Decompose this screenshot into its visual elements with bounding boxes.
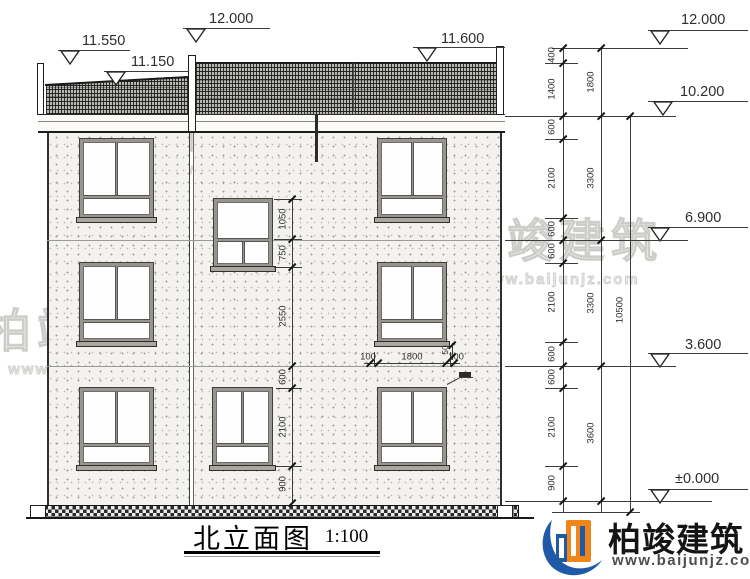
elevation-label: 12.000 bbox=[209, 11, 253, 27]
dim-label: 100 bbox=[360, 352, 376, 363]
window-middle-ground bbox=[213, 388, 272, 466]
elevation-triangle-icon bbox=[186, 28, 206, 43]
elevation-drawing: 柏竣建筑 www.baijunjz.com 柏竣建筑 www.baijunjz.… bbox=[0, 0, 750, 579]
dim-label: 400 bbox=[547, 47, 558, 63]
dim-label: 3300 bbox=[586, 167, 597, 188]
elevation-label: 3.600 bbox=[685, 337, 721, 353]
dim-label: 750 bbox=[278, 245, 289, 261]
extension-line bbox=[274, 267, 302, 268]
dim-label: 1050 bbox=[278, 208, 289, 229]
window-sill bbox=[210, 266, 276, 272]
elevation-label: ±0.000 bbox=[675, 471, 719, 487]
drawing-scale: 1:100 bbox=[325, 526, 368, 548]
window-transom bbox=[216, 443, 269, 447]
elevation-triangle-icon bbox=[60, 50, 80, 65]
middle-parapet-post bbox=[188, 55, 196, 132]
dim-label: 2550 bbox=[278, 305, 289, 326]
window-transom bbox=[217, 238, 269, 242]
window-sill bbox=[76, 217, 157, 223]
elevation-label: 11.550 bbox=[82, 33, 125, 49]
elevation-triangle-icon bbox=[650, 30, 670, 45]
vent-pipe bbox=[315, 114, 318, 162]
window-left-middle bbox=[80, 263, 153, 342]
dim-label: 1400 bbox=[547, 78, 558, 99]
elevation-triangle-icon bbox=[417, 47, 437, 62]
window-sill bbox=[374, 465, 450, 471]
dim-label: 1800 bbox=[401, 352, 422, 363]
title-underline bbox=[184, 551, 380, 554]
title-underline-thin bbox=[184, 556, 380, 557]
window-transom bbox=[83, 443, 150, 447]
floor-line-3600 bbox=[47, 366, 499, 367]
extension-line bbox=[505, 501, 712, 502]
window-sill bbox=[76, 341, 157, 347]
dim-chain-line bbox=[630, 116, 631, 513]
window-mullion bbox=[411, 266, 414, 319]
extension-line bbox=[505, 240, 688, 241]
window-right-ground bbox=[378, 388, 446, 466]
dim-label: 50 bbox=[440, 345, 450, 354]
watermark-url: www.baijunjz.com bbox=[478, 271, 639, 288]
dim-chain-line bbox=[601, 48, 602, 513]
elevation-label: 6.900 bbox=[685, 210, 721, 226]
dim-label: 10500 bbox=[615, 297, 626, 323]
dim-label: 2100 bbox=[547, 416, 558, 437]
main-roof-tiles bbox=[196, 62, 497, 116]
window-transom bbox=[381, 195, 443, 199]
dim-label: 3600 bbox=[586, 422, 597, 443]
elevation-label: 12.000 bbox=[681, 12, 725, 28]
window-sill bbox=[209, 465, 276, 471]
dim-label: 600 bbox=[547, 346, 558, 362]
elevation-label: 11.600 bbox=[441, 31, 484, 47]
extension-line bbox=[274, 239, 302, 240]
extension-line bbox=[274, 199, 302, 200]
window-transom bbox=[381, 443, 443, 447]
window-sill bbox=[374, 341, 450, 347]
eave-fascia-band bbox=[38, 114, 505, 133]
window-mullion bbox=[242, 242, 245, 264]
elevation-label: 10.200 bbox=[680, 84, 724, 100]
elevation-label: 11.150 bbox=[131, 54, 174, 70]
dim-chain-line bbox=[563, 48, 564, 513]
window-mullion bbox=[411, 142, 414, 195]
company-url: www.baijunjz.com bbox=[612, 552, 750, 569]
company-logo-icon bbox=[536, 510, 608, 579]
window-sill bbox=[76, 465, 157, 471]
dim-label: 600 bbox=[547, 221, 558, 237]
section-joint-line bbox=[189, 130, 190, 505]
dim-label: 600 bbox=[278, 369, 289, 385]
dim-chain-line bbox=[292, 199, 293, 503]
dim-label: 2100 bbox=[278, 416, 289, 437]
window-transom bbox=[381, 319, 443, 323]
right-parapet-post bbox=[496, 46, 504, 115]
window-sill bbox=[374, 217, 450, 223]
dim-label: 1800 bbox=[586, 71, 597, 92]
window-mullion bbox=[115, 391, 118, 443]
dim-label: 2100 bbox=[547, 291, 558, 312]
dim-label: 600 bbox=[547, 119, 558, 135]
extension-line bbox=[505, 116, 676, 117]
window-mullion bbox=[115, 142, 118, 195]
roof-joint-line bbox=[353, 63, 354, 112]
window-transom bbox=[83, 319, 150, 323]
floor-line-6900 bbox=[47, 240, 499, 241]
window-mullion bbox=[115, 266, 118, 319]
window-left-ground bbox=[80, 388, 153, 466]
window-mullion bbox=[411, 391, 414, 443]
note-text-blob bbox=[459, 372, 471, 377]
dim-label: 900 bbox=[278, 476, 289, 492]
window-mullion bbox=[241, 391, 244, 443]
extension-line bbox=[505, 366, 676, 367]
elevation-triangle-icon bbox=[653, 101, 673, 116]
elevation-triangle-icon bbox=[106, 71, 126, 86]
dim-label: 600 bbox=[547, 243, 558, 259]
extension-line bbox=[552, 48, 688, 49]
dim-label: 2100 bbox=[547, 167, 558, 188]
dim-label: 3300 bbox=[586, 292, 597, 313]
left-parapet-post bbox=[37, 63, 44, 115]
window-right-middle bbox=[378, 263, 446, 342]
window-stair bbox=[214, 199, 272, 267]
dim-label: 900 bbox=[547, 475, 558, 491]
window-left-top bbox=[80, 139, 153, 218]
dim-label: 600 bbox=[547, 369, 558, 385]
window-transom bbox=[83, 195, 150, 199]
window-right-top bbox=[378, 139, 446, 218]
note-leader-line bbox=[460, 377, 473, 378]
